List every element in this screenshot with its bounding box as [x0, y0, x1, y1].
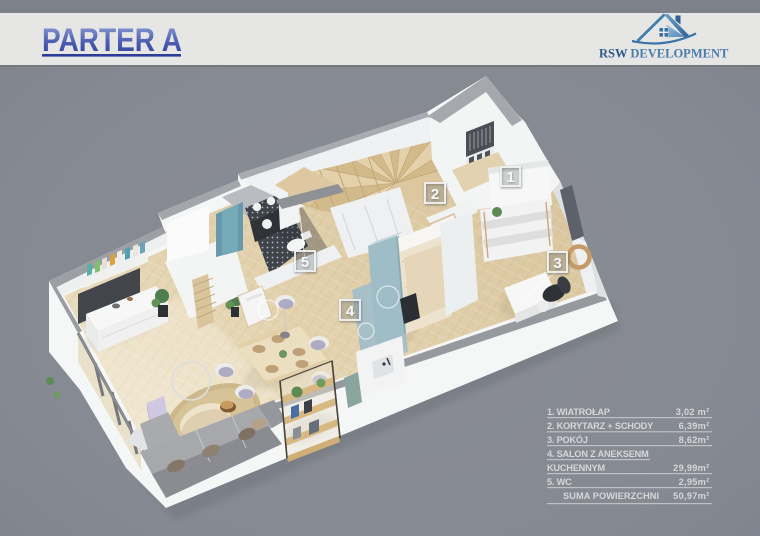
svg-text:50,97m²: 50,97m²: [673, 491, 709, 501]
svg-text:4. SALON Z ANEKSENM: 4. SALON Z ANEKSENM: [547, 449, 649, 459]
svg-text:KUCHENNYM: KUCHENNYM: [547, 463, 605, 473]
svg-text:1. WIATROŁAP: 1. WIATROŁAP: [547, 407, 610, 417]
svg-text:5. WC: 5. WC: [547, 477, 572, 487]
svg-text:3: 3: [553, 255, 561, 272]
svg-text:6,39m²: 6,39m²: [679, 421, 710, 431]
svg-text:RSW DEVELOPMENT: RSW DEVELOPMENT: [599, 47, 729, 61]
svg-text:8,62m²: 8,62m²: [679, 435, 710, 445]
svg-text:3,02 m²: 3,02 m²: [676, 407, 710, 417]
svg-text:2. KORYTARZ + SCHODY: 2. KORYTARZ + SCHODY: [547, 421, 653, 431]
svg-text:29,99m²: 29,99m²: [673, 463, 709, 473]
svg-text:PARTER A: PARTER A: [42, 23, 182, 58]
svg-text:1: 1: [506, 169, 514, 186]
svg-text:SUMA POWIERZCHNI: SUMA POWIERZCHNI: [563, 491, 659, 501]
svg-text:4: 4: [346, 303, 355, 320]
svg-text:2,95m²: 2,95m²: [679, 477, 710, 487]
svg-text:5: 5: [301, 254, 309, 271]
svg-text:2: 2: [431, 186, 439, 203]
svg-text:3. POKÓJ: 3. POKÓJ: [547, 434, 588, 445]
